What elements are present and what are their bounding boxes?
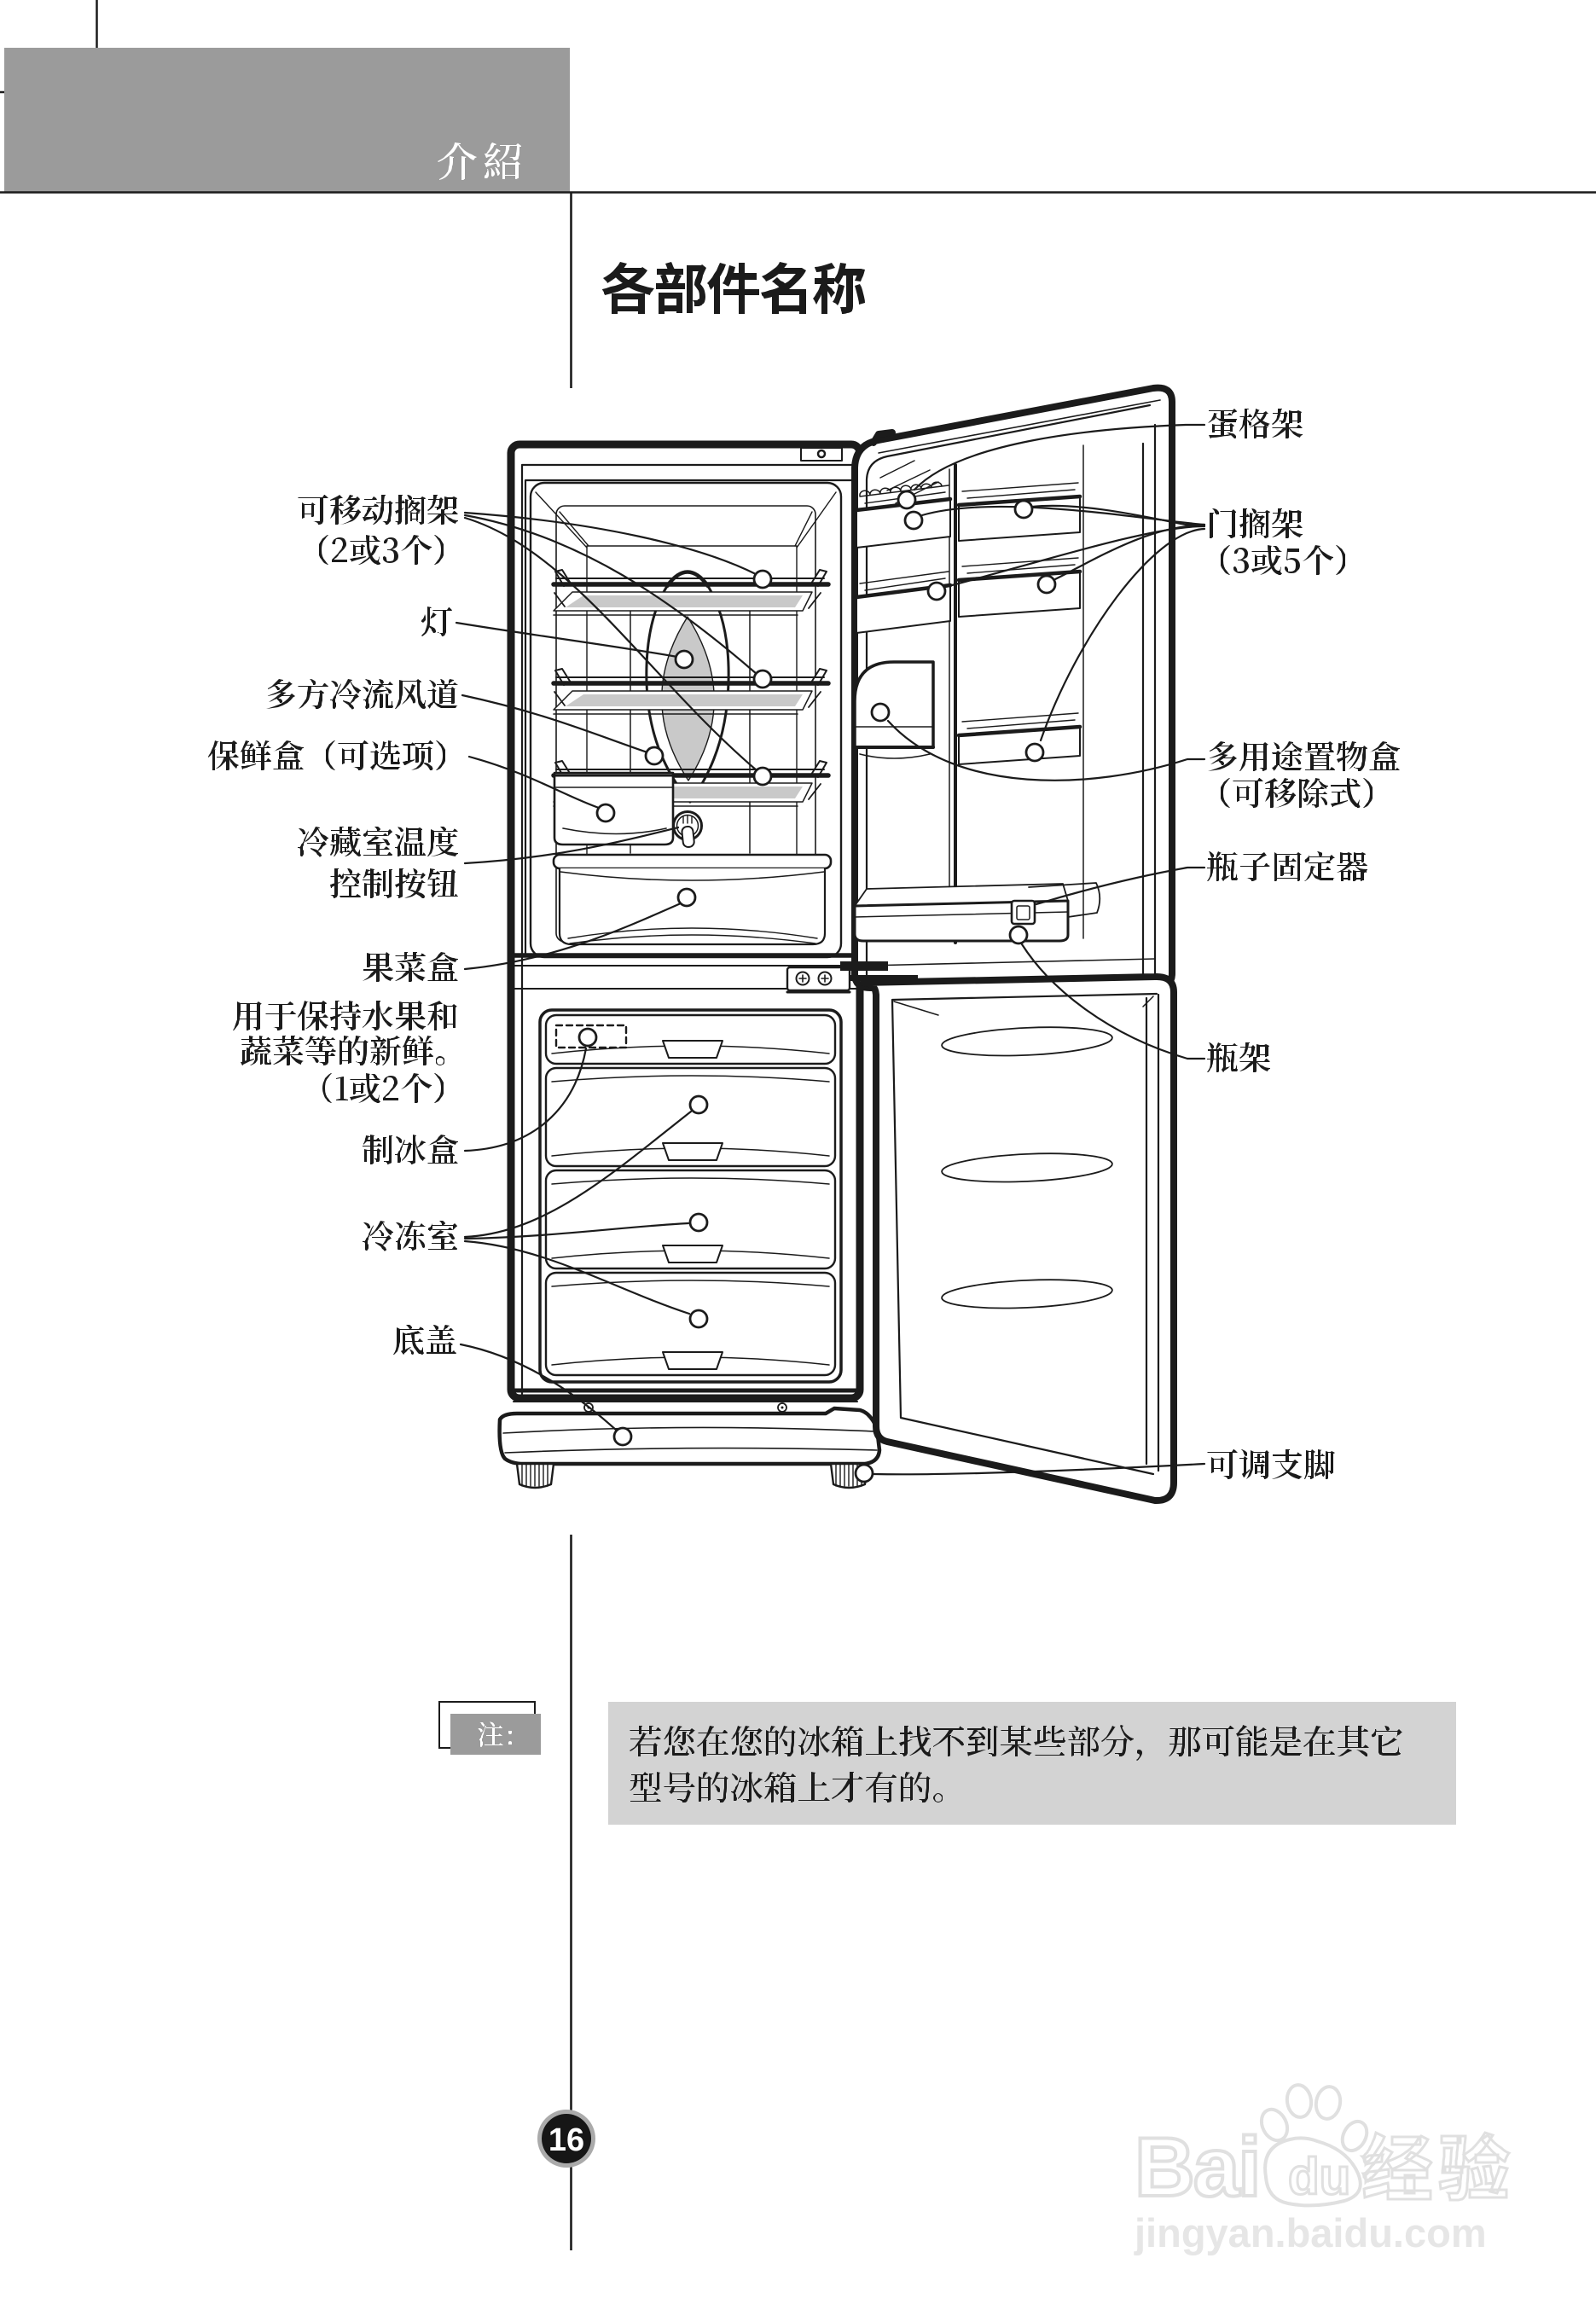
svg-text:jingyan.baidu.com: jingyan.baidu.com xyxy=(1134,2210,1487,2255)
svg-text:Bai: Bai xyxy=(1135,2120,1260,2214)
svg-text:16: 16 xyxy=(548,2122,584,2158)
svg-text:du: du xyxy=(1288,2148,1350,2205)
